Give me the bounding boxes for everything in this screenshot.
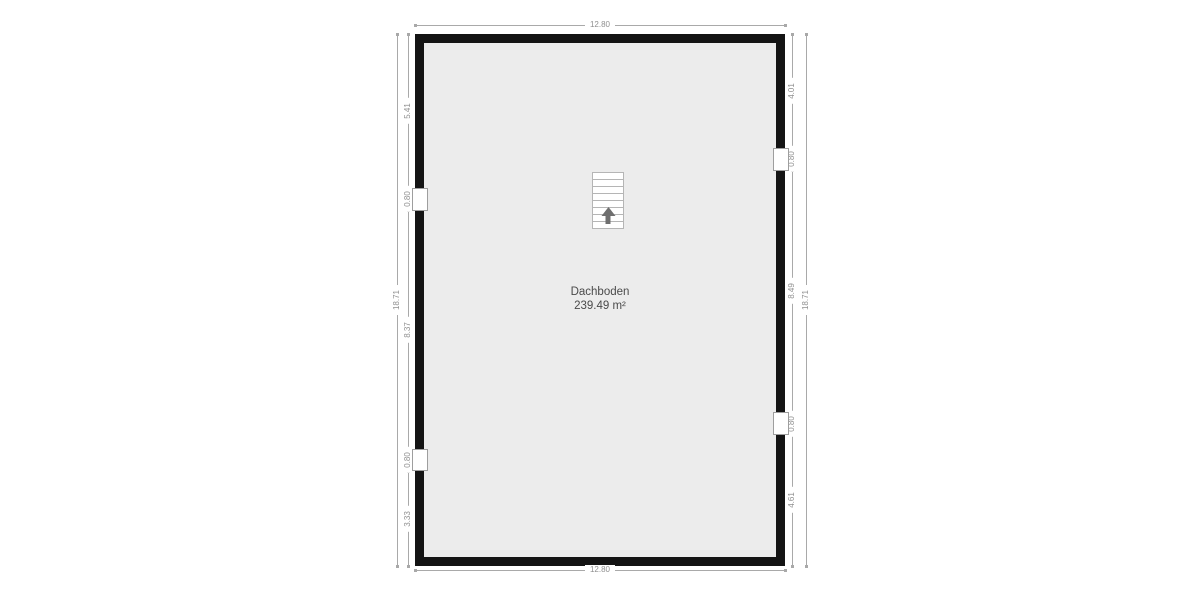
stair-tread bbox=[593, 187, 623, 194]
dim-right-total-label: 18.71 bbox=[801, 285, 811, 315]
dim-left-seg-tick-0 bbox=[407, 33, 410, 36]
dim-right-seg-label-0: 4.01 bbox=[787, 78, 797, 104]
floorplan-canvas: Dachboden 239.49 m² 12.8012.8018.7118.71… bbox=[0, 0, 1200, 600]
stairs-direction-arrow-icon bbox=[601, 207, 616, 224]
dim-left-seg-label-2: 8.37 bbox=[403, 317, 413, 343]
room-label: Dachboden 239.49 m² bbox=[415, 285, 785, 313]
dim-left-seg-tick-5 bbox=[407, 565, 410, 568]
dim-left-total-tick-end bbox=[396, 565, 399, 568]
stair-tread bbox=[593, 173, 623, 180]
dim-right-total-tick-start bbox=[805, 33, 808, 36]
dim-bottom-label: 12.80 bbox=[585, 565, 615, 575]
arrow-head bbox=[601, 207, 615, 216]
dim-left-total-label: 18.71 bbox=[392, 285, 402, 315]
dim-top-tick-start bbox=[414, 24, 417, 27]
stairs-icon bbox=[592, 172, 624, 229]
room-area: 239.49 m² bbox=[415, 299, 785, 313]
room-name: Dachboden bbox=[415, 285, 785, 299]
dim-left-total-tick-start bbox=[396, 33, 399, 36]
dim-bottom-tick-start bbox=[414, 569, 417, 572]
dim-right-seg-label-3: 0.80 bbox=[787, 411, 797, 437]
dim-right-seg-tick-5 bbox=[791, 565, 794, 568]
dim-left-seg-label-4: 3.33 bbox=[403, 506, 413, 532]
dim-left-seg-label-0: 5.41 bbox=[403, 98, 413, 124]
window-right-3 bbox=[773, 412, 789, 435]
dim-right-seg-label-2: 8.49 bbox=[787, 279, 797, 305]
stair-tread bbox=[593, 194, 623, 201]
dim-right-seg-label-4: 4.61 bbox=[787, 488, 797, 514]
dim-bottom-tick-end bbox=[784, 569, 787, 572]
window-right-1 bbox=[773, 148, 789, 171]
window-left-1 bbox=[412, 188, 428, 211]
arrow-stem bbox=[606, 216, 611, 224]
dim-right-seg-tick-0 bbox=[791, 33, 794, 36]
dim-right-seg-label-1: 0.80 bbox=[787, 147, 797, 173]
window-left-3 bbox=[412, 449, 428, 472]
stair-tread bbox=[593, 180, 623, 187]
dim-right-total-tick-end bbox=[805, 565, 808, 568]
dim-top-label: 12.80 bbox=[585, 20, 615, 30]
dim-top-tick-end bbox=[784, 24, 787, 27]
